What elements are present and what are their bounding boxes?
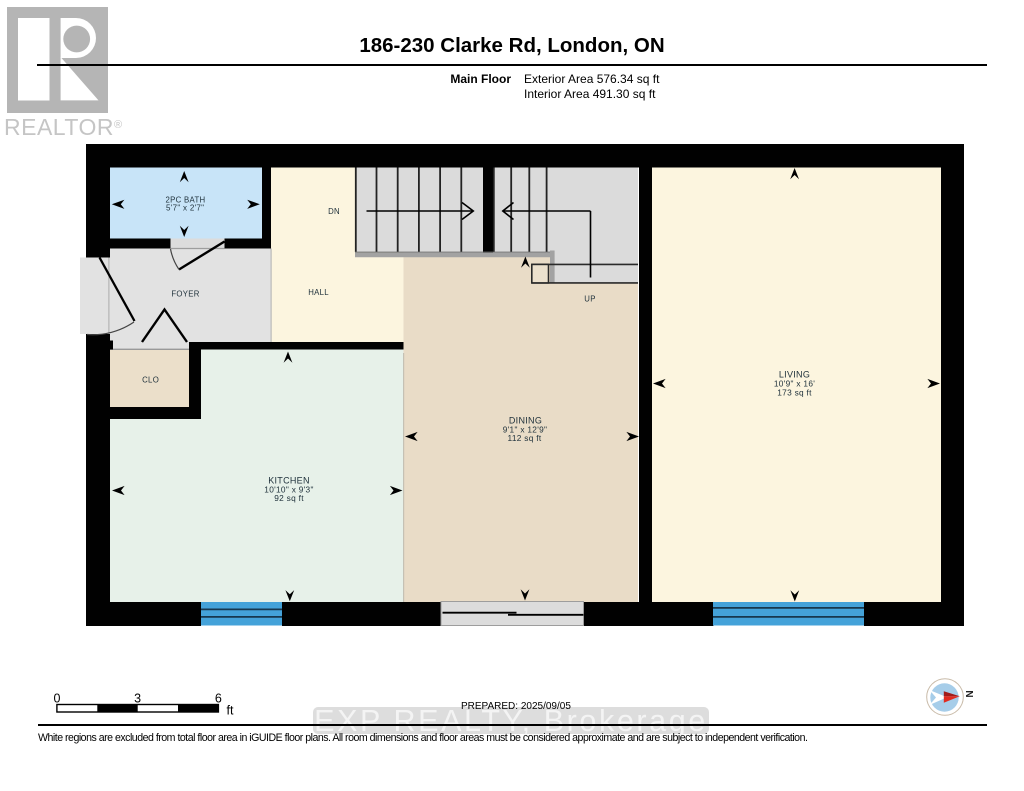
- svg-text:112 sq ft: 112 sq ft: [508, 433, 542, 443]
- svg-text:FOYER: FOYER: [171, 290, 199, 299]
- svg-text:HALL: HALL: [308, 288, 329, 297]
- svg-text:0: 0: [54, 692, 61, 706]
- svg-text:5'7" x 2'7": 5'7" x 2'7": [166, 204, 204, 213]
- svg-text:92 sq ft: 92 sq ft: [274, 493, 304, 503]
- svg-text:UP: UP: [584, 295, 595, 304]
- svg-text:173 sq ft: 173 sq ft: [777, 388, 812, 398]
- svg-text:3: 3: [134, 692, 141, 706]
- svg-text:DN: DN: [328, 207, 340, 216]
- svg-text:ft: ft: [227, 704, 234, 718]
- svg-text:CLO: CLO: [142, 376, 159, 385]
- svg-text:6: 6: [215, 692, 222, 706]
- svg-text:N: N: [963, 690, 974, 697]
